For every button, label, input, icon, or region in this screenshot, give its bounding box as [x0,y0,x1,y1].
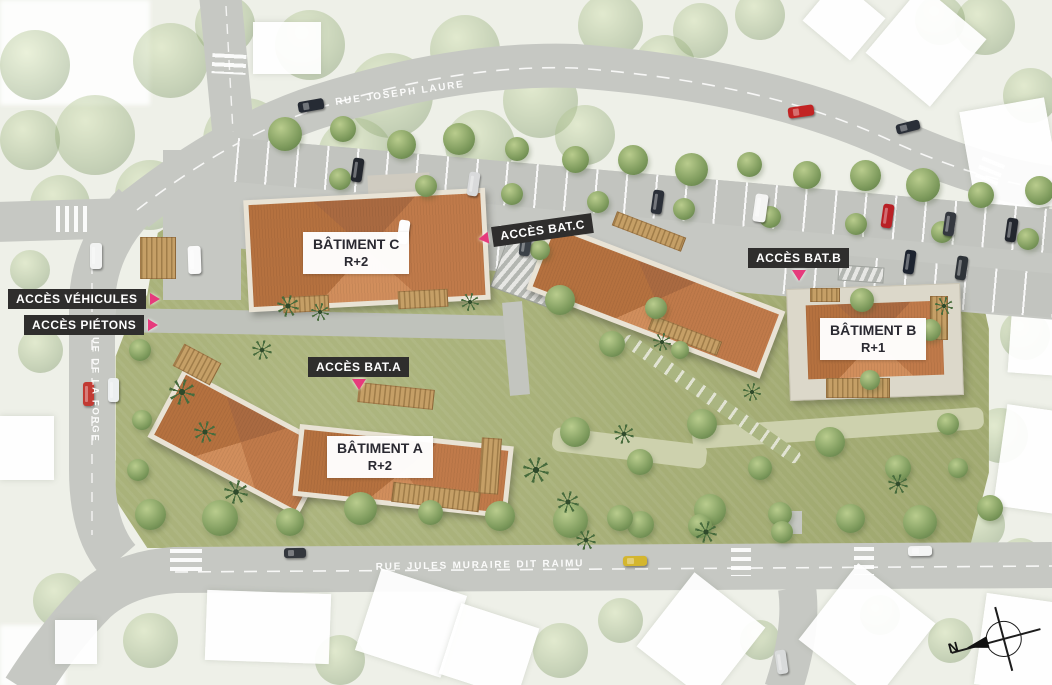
crosswalk [211,53,246,75]
tree [673,198,695,220]
tree [344,492,377,525]
building-b-label: BÂTIMENT B R+1 [820,318,926,360]
tree [671,341,689,359]
tree [202,500,238,536]
terrace-deck [398,289,449,310]
tree [860,370,880,390]
car [188,246,202,274]
car [908,546,932,556]
tree [771,521,793,543]
tree [815,427,845,457]
tree [545,285,575,315]
palm-tree [252,340,272,360]
tree [132,410,152,430]
crosswalk [731,548,751,576]
building-a-name: BÂTIMENT A [337,440,423,458]
car [90,243,102,269]
tree [1025,176,1052,205]
palm-tree [653,333,671,351]
car [108,378,119,402]
access-vehicles-marker: ACCÈS VÉHICULES [8,289,160,309]
neighbor-building [253,22,321,74]
crosswalk [170,549,202,575]
street-name-de-la-forge: RUE DE LA FORGE [90,321,101,451]
tree [562,146,589,173]
tree [618,145,648,175]
palm-tree [194,421,216,443]
tree [387,130,416,159]
tree [418,500,443,525]
access-bat-b-label: ACCÈS BAT.B [748,248,849,268]
terrace-deck [810,288,840,302]
tree [599,331,625,357]
palm-tree [935,297,953,315]
arrow-right-icon [150,293,160,305]
tree [903,505,937,539]
site-plan: RUE JOSEPH LAURE RUE DE LA FORGE RUE JUL… [0,0,1052,685]
car [623,556,647,566]
tree [793,161,821,189]
access-pedestrians-marker: ACCÈS PIÉTONS [24,315,158,335]
palm-tree [311,303,329,321]
access-pedestrians-label: ACCÈS PIÉTONS [24,315,144,335]
building-a-level: R+2 [337,458,423,474]
tree [748,456,772,480]
neighbor-building [205,590,331,664]
tree [485,501,515,531]
palm-tree [695,521,717,543]
palm-tree [169,379,195,405]
palm-tree [523,457,549,483]
tree [587,191,609,213]
tree [627,449,653,475]
tree [977,495,1003,521]
palm-tree [614,424,634,444]
arrow-down-icon [792,270,806,281]
palm-tree [888,474,908,494]
palm-tree [224,480,248,504]
tree [268,117,302,151]
access-bat-a-label: ACCÈS BAT.A [308,357,409,377]
arrow-down-icon [352,379,366,390]
tree [850,160,881,191]
tree [276,508,304,536]
pergola [140,237,176,279]
arrow-left-icon [478,232,490,245]
tree [530,240,550,260]
tree [645,297,667,319]
tree [937,413,959,435]
tree [675,153,708,186]
tree [737,152,762,177]
tree [329,168,351,190]
tree [501,183,523,205]
terrace-deck [826,378,890,398]
building-c-label: BÂTIMENT C R+2 [303,232,409,274]
access-vehicles-label: ACCÈS VÉHICULES [8,289,146,309]
tree [948,458,968,478]
building-c-level: R+2 [313,254,399,270]
tree [330,116,356,142]
palm-tree [277,295,299,317]
building-b-name: BÂTIMENT B [830,322,916,340]
tree [906,168,940,202]
car [284,548,306,558]
internal-drive [115,320,515,328]
tree [836,504,865,533]
internal-path [512,302,520,395]
access-bat-b-marker: ACCÈS BAT.B [748,248,849,281]
neighbor-building [0,416,54,480]
neighbor-building [55,620,97,664]
tree [607,505,633,531]
tree [560,417,590,447]
building-b-level: R+1 [830,340,916,356]
tree [850,288,874,312]
terrace-deck [478,437,502,494]
tree [127,459,149,481]
arrow-right-icon [148,319,158,331]
access-bat-a-marker: ACCÈS BAT.A [308,357,409,390]
building-a-label: BÂTIMENT A R+2 [327,436,433,478]
tree [135,499,166,530]
tree [129,339,151,361]
palm-tree [557,491,579,513]
palm-tree [576,530,596,550]
crosswalk [854,547,874,575]
palm-tree [743,383,761,401]
compass-north-arrow-icon [965,636,989,653]
building-c-name: BÂTIMENT C [313,236,399,254]
palm-tree [461,293,479,311]
tree [687,409,717,439]
crosswalk [56,206,92,232]
